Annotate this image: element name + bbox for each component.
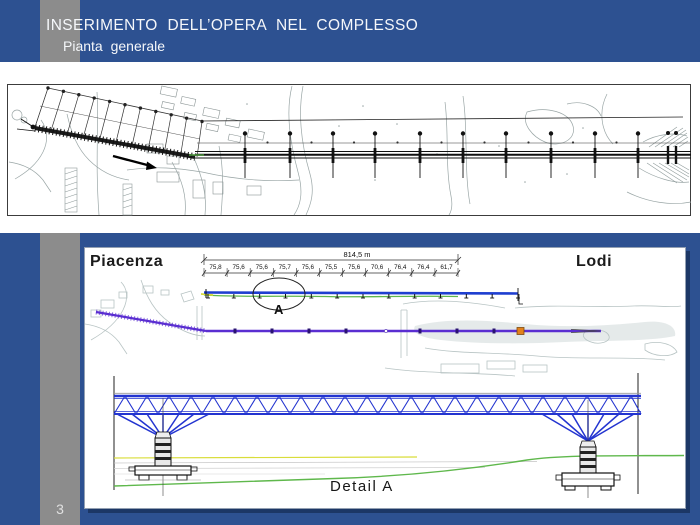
svg-text:75,6: 75,6	[233, 264, 246, 271]
slide-title: INSERIMENTO DELL’OPERA NEL COMPLESSO	[46, 17, 418, 35]
detail-a-label: Detail A	[330, 478, 394, 495]
svg-text:75,8: 75,8	[209, 264, 222, 271]
span-dim-group: 75,875,675,675,775,675,575,670,676,476,4…	[202, 264, 460, 277]
total-length-label: 814,5 m	[343, 250, 370, 259]
svg-text:75,6: 75,6	[348, 264, 361, 271]
detail-panel: 814,5 m 75,875,675,675,775,675,575,670,6…	[84, 247, 686, 509]
faint-city-plan	[85, 280, 205, 354]
pier-strut-fans	[117, 414, 634, 441]
svg-text:61,7: 61,7	[440, 264, 453, 271]
general-plan-panel	[7, 84, 691, 216]
plan-orange-marker	[517, 328, 524, 335]
detail-drawing: 814,5 m 75,875,675,675,775,675,575,670,6…	[85, 248, 685, 508]
plan-view	[96, 312, 601, 335]
general-plan-drawing	[7, 84, 691, 216]
svg-text:75,5: 75,5	[325, 264, 338, 271]
city-label-lodi: Lodi	[576, 253, 612, 271]
svg-text:75,6: 75,6	[256, 264, 269, 271]
detail-a-view	[114, 373, 684, 498]
svg-text:75,7: 75,7	[279, 264, 292, 271]
lower-gray-stripe	[40, 233, 80, 525]
plan-border	[8, 85, 691, 216]
page-number: 3	[40, 501, 80, 517]
svg-text:75,6: 75,6	[302, 264, 315, 271]
svg-text:76,4: 76,4	[417, 264, 430, 271]
elevation-view	[201, 278, 523, 310]
faint-river-plan	[385, 301, 681, 376]
slide-subtitle: Pianta generale	[63, 38, 165, 54]
total-dimension: 814,5 m	[201, 250, 461, 265]
city-label-piacenza: Piacenza	[90, 253, 163, 271]
detail-callout-label: A	[274, 302, 283, 317]
svg-text:70,6: 70,6	[371, 264, 384, 271]
svg-text:76,4: 76,4	[394, 264, 407, 271]
slide: INSERIMENTO DELL’OPERA NEL COMPLESSO Pia…	[0, 0, 700, 525]
